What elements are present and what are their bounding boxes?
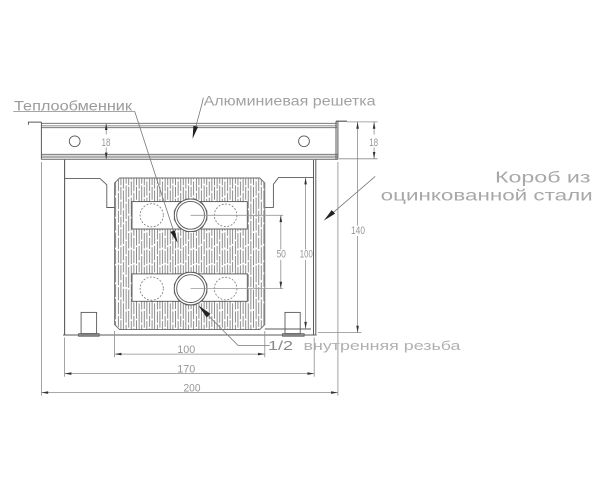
- svg-text:Алюминиевая решетка: Алюминиевая решетка: [204, 93, 376, 109]
- svg-text:18: 18: [102, 137, 111, 149]
- svg-text:1/2: 1/2: [268, 338, 293, 353]
- svg-text:140: 140: [351, 225, 365, 237]
- svg-text:100: 100: [177, 344, 195, 356]
- svg-text:Короб из: Короб из: [495, 169, 591, 186]
- svg-text:18: 18: [369, 137, 378, 149]
- svg-text:50: 50: [276, 248, 286, 260]
- svg-text:оцинкованной стали: оцинкованной стали: [381, 188, 593, 205]
- svg-text:внутренняя резьба: внутренняя резьба: [304, 338, 462, 353]
- svg-text:200: 200: [184, 383, 201, 395]
- svg-text:100: 100: [300, 248, 313, 260]
- svg-text:170: 170: [177, 364, 195, 376]
